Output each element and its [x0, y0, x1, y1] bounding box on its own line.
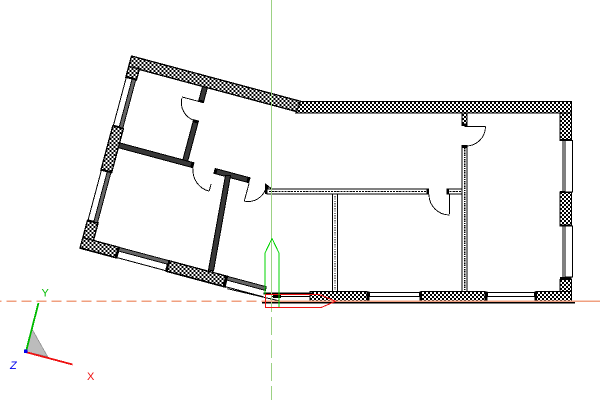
svg-text:X: X [87, 371, 95, 383]
svg-text:Z: Z [9, 360, 18, 372]
svg-text:Y: Y [42, 288, 50, 300]
